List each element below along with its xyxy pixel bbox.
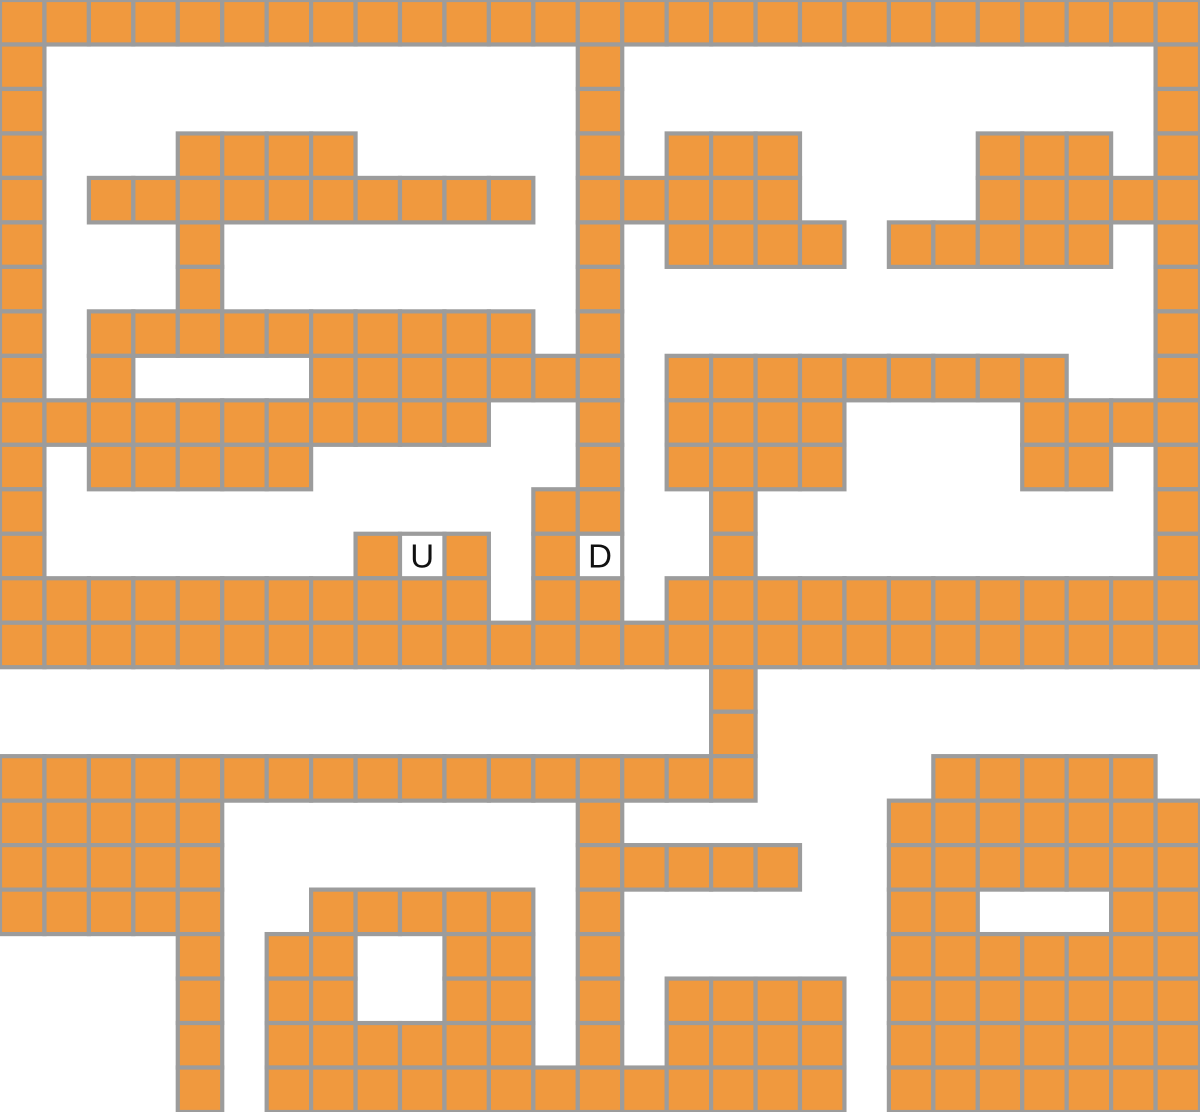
wall-tile [178,311,222,355]
wall-tile [1156,1068,1200,1112]
wall-tile [667,400,711,444]
wall-tile [356,400,400,444]
wall-tile [933,845,977,889]
wall-tile [267,578,311,622]
wall-tile [1067,178,1111,222]
wall-tile [800,222,844,266]
wall-tile [267,979,311,1023]
wall-tile [1067,0,1111,44]
wall-tile [1156,845,1200,889]
wall-tile [178,845,222,889]
wall-tile [711,0,755,44]
wall-tile [1156,534,1200,578]
wall-tile [756,1023,800,1067]
wall-tile [489,1068,533,1112]
wall-tile [756,133,800,177]
wall-tile [400,400,444,444]
wall-tile [533,534,577,578]
wall-tile [267,0,311,44]
wall-tile [0,178,44,222]
wall-tile [356,890,400,934]
wall-tile [267,1068,311,1112]
wall-tile [533,578,577,622]
wall-tile [267,133,311,177]
wall-tile [667,979,711,1023]
wall-tile [311,934,355,978]
wall-tile [1022,1023,1066,1067]
wall-tile [711,178,755,222]
wall-tile [0,534,44,578]
wall-tile [89,623,133,667]
wall-tile [1067,1068,1111,1112]
wall-tile [1067,801,1111,845]
wall-tile [1156,44,1200,88]
wall-tile [1067,623,1111,667]
wall-tile [667,1068,711,1112]
wall-tile [1022,756,1066,800]
wall-tile [311,890,355,934]
wall-tile [978,979,1022,1023]
wall-tile [711,133,755,177]
wall-tile [311,1023,355,1067]
wall-tile [267,934,311,978]
wall-tile [1111,934,1155,978]
wall-tile [1022,801,1066,845]
wall-tile [1022,400,1066,444]
wall-tile [356,623,400,667]
dungeon-map: UD [0,0,1200,1112]
wall-tile [133,801,177,845]
wall-tile [400,356,444,400]
wall-tile [667,222,711,266]
wall-tile [89,578,133,622]
wall-tile [89,890,133,934]
wall-tile [933,756,977,800]
wall-tile [267,445,311,489]
wall-tile [133,845,177,889]
wall-tile [1111,623,1155,667]
wall-tile [444,178,488,222]
wall-tile [578,489,622,533]
wall-tile [756,178,800,222]
wall-tile [89,356,133,400]
wall-tile [800,356,844,400]
wall-tile [356,1023,400,1067]
wall-tile [1111,801,1155,845]
wall-tile [667,178,711,222]
wall-tile [667,0,711,44]
wall-tile [1022,445,1066,489]
wall-tile [711,356,755,400]
wall-tile [89,845,133,889]
wall-tile [444,578,488,622]
wall-tile [0,356,44,400]
wall-tile [44,756,88,800]
wall-tile [0,0,44,44]
wall-tile [933,356,977,400]
wall-tile [1022,623,1066,667]
wall-tile [489,756,533,800]
wall-tile [89,178,133,222]
wall-tile [933,801,977,845]
wall-tile [133,311,177,355]
wall-tile [844,356,888,400]
wall-tile [444,756,488,800]
wall-tile [1022,979,1066,1023]
wall-tile [889,979,933,1023]
wall-tile [356,0,400,44]
wall-tile [0,89,44,133]
wall-tile [844,623,888,667]
wall-tile [356,356,400,400]
wall-tile [267,1023,311,1067]
wall-tile [978,1068,1022,1112]
wall-tile [578,445,622,489]
wall-tile [178,133,222,177]
wall-tile [578,89,622,133]
wall-tile [222,400,266,444]
wall-tile [1022,0,1066,44]
wall-tile [578,578,622,622]
wall-tile [756,400,800,444]
wall-tile [311,756,355,800]
wall-tile [800,1068,844,1112]
wall-tile [978,133,1022,177]
wall-tile [889,0,933,44]
wall-tile [44,0,88,44]
wall-tile [711,400,755,444]
wall-tile [0,133,44,177]
wall-tile [533,489,577,533]
wall-tile [933,979,977,1023]
wall-tile [978,222,1022,266]
wall-tile [933,222,977,266]
wall-tile [400,623,444,667]
wall-tile [1022,178,1066,222]
wall-tile [844,0,888,44]
wall-tile [133,445,177,489]
wall-tile [711,222,755,266]
wall-tile [1156,445,1200,489]
wall-tile [178,445,222,489]
wall-tile [800,578,844,622]
wall-tile [1022,356,1066,400]
wall-tile [133,578,177,622]
wall-tile [711,534,755,578]
wall-tile [533,756,577,800]
wall-tile [178,934,222,978]
wall-tile [889,623,933,667]
wall-tile [1067,133,1111,177]
wall-tile [444,400,488,444]
wall-tile [533,356,577,400]
wall-tile [1111,0,1155,44]
wall-tile [178,756,222,800]
wall-tile [222,0,266,44]
wall-tile [1156,89,1200,133]
wall-tile [800,0,844,44]
wall-tile [89,801,133,845]
wall-tile [1022,133,1066,177]
wall-tile [444,1023,488,1067]
wall-tile [44,578,88,622]
wall-tile [578,222,622,266]
wall-tile [444,890,488,934]
wall-tile [178,222,222,266]
wall-tile [756,356,800,400]
wall-tile [311,178,355,222]
wall-tile [1111,178,1155,222]
wall-tile [356,311,400,355]
wall-tile [578,311,622,355]
wall-tile [622,845,666,889]
wall-tile [978,356,1022,400]
wall-tile [1022,222,1066,266]
wall-tile [578,0,622,44]
wall-tile [756,623,800,667]
wall-tile [1156,489,1200,533]
wall-tile [489,934,533,978]
wall-tile [711,578,755,622]
wall-tile [311,979,355,1023]
wall-tile [889,222,933,266]
wall-tile [889,934,933,978]
wall-tile [356,756,400,800]
wall-tile [711,1068,755,1112]
wall-tile [1156,801,1200,845]
wall-tile [1067,845,1111,889]
wall-tile [311,133,355,177]
wall-tile [756,0,800,44]
wall-tile [1067,445,1111,489]
wall-tile [1156,1023,1200,1067]
wall-tile [178,801,222,845]
wall-tile [578,1068,622,1112]
wall-tile [756,979,800,1023]
wall-tile [89,400,133,444]
wall-tile [1156,578,1200,622]
wall-tile [1022,934,1066,978]
wall-tile [311,623,355,667]
wall-tile [667,133,711,177]
wall-tile [1156,356,1200,400]
wall-tile [311,0,355,44]
wall-tile [1111,756,1155,800]
wall-tile [889,578,933,622]
wall-tile [978,801,1022,845]
wall-tile [400,0,444,44]
wall-tile [978,845,1022,889]
wall-tile [1111,1068,1155,1112]
wall-tile [1156,222,1200,266]
wall-tile [622,756,666,800]
wall-tile [133,178,177,222]
wall-tile [311,356,355,400]
wall-tile [0,578,44,622]
stairs-down-label: D [588,538,612,575]
wall-tile [1022,1068,1066,1112]
wall-tile [889,890,933,934]
wall-tile [578,178,622,222]
wall-tile [533,1068,577,1112]
wall-tile [622,178,666,222]
wall-tile [711,756,755,800]
wall-tile [1111,890,1155,934]
wall-tile [311,1068,355,1112]
wall-tile [800,1023,844,1067]
wall-tile [133,400,177,444]
wall-tile [978,756,1022,800]
wall-tile [1156,934,1200,978]
wall-tile [400,178,444,222]
wall-tile [0,489,44,533]
wall-tile [933,890,977,934]
wall-tile [578,267,622,311]
wall-tile [1067,756,1111,800]
wall-tile [978,1023,1022,1067]
wall-tile [444,979,488,1023]
wall-tile [400,1023,444,1067]
wall-tile [0,845,44,889]
wall-tile [889,845,933,889]
wall-tile [356,534,400,578]
wall-tile [622,623,666,667]
wall-tile [844,578,888,622]
wall-tile [267,178,311,222]
wall-tile [178,1068,222,1112]
wall-tile [311,400,355,444]
wall-tile [178,979,222,1023]
wall-tile [578,623,622,667]
wall-tile [178,400,222,444]
wall-tile [1156,0,1200,44]
wall-tile [89,0,133,44]
wall-tile [578,44,622,88]
wall-tile [1156,623,1200,667]
wall-tile [0,311,44,355]
wall-tile [267,311,311,355]
wall-tile [978,0,1022,44]
wall-tile [178,178,222,222]
wall-tile [311,311,355,355]
wall-tile [444,534,488,578]
wall-tile [0,801,44,845]
wall-tile [578,845,622,889]
wall-tile [978,178,1022,222]
wall-tile [933,623,977,667]
wall-tile [0,890,44,934]
wall-tile [1022,845,1066,889]
wall-tile [89,756,133,800]
wall-tile [444,1068,488,1112]
wall-tile [889,356,933,400]
wall-tile [178,623,222,667]
wall-tile [400,1068,444,1112]
wall-tile [1156,311,1200,355]
wall-tile [578,890,622,934]
wall-tile [44,400,88,444]
wall-tile [578,756,622,800]
wall-tile [889,801,933,845]
wall-tile [489,178,533,222]
wall-tile [178,267,222,311]
wall-tile [44,801,88,845]
wall-tile [400,890,444,934]
wall-tile [933,934,977,978]
wall-tile [178,1023,222,1067]
wall-tile [711,445,755,489]
wall-tile [667,578,711,622]
wall-tile [800,623,844,667]
wall-tile [0,222,44,266]
wall-tile [222,756,266,800]
wall-tile [267,400,311,444]
wall-tile [889,1023,933,1067]
wall-tile [44,890,88,934]
wall-tile [1067,578,1111,622]
wall-tile [1067,400,1111,444]
wall-tile [489,311,533,355]
wall-tile [0,44,44,88]
wall-tile [444,623,488,667]
wall-tile [1156,178,1200,222]
wall-tile [356,578,400,622]
wall-tile [133,623,177,667]
wall-tile [1156,133,1200,177]
wall-tile [933,1023,977,1067]
wall-tile [222,133,266,177]
wall-tile [711,979,755,1023]
wall-tile [444,356,488,400]
wall-tile [0,623,44,667]
wall-tile [1067,222,1111,266]
wall-tile [89,445,133,489]
wall-tile [533,0,577,44]
dungeon-map-grid: UD [0,0,1200,1112]
wall-tile [667,1023,711,1067]
wall-tile [356,1068,400,1112]
wall-tile [444,311,488,355]
wall-tile [978,623,1022,667]
wall-tile [44,845,88,889]
wall-tile [489,979,533,1023]
wall-tile [1022,578,1066,622]
wall-tile [1156,400,1200,444]
wall-tile [489,890,533,934]
wall-tile [756,222,800,266]
wall-tile [578,934,622,978]
wall-tile [756,445,800,489]
wall-tile [1111,979,1155,1023]
wall-tile [1156,979,1200,1023]
wall-tile [0,756,44,800]
wall-tile [756,845,800,889]
wall-tile [622,1068,666,1112]
wall-tile [667,445,711,489]
wall-tile [222,623,266,667]
wall-tile [133,756,177,800]
wall-tile [978,578,1022,622]
wall-tile [0,400,44,444]
wall-tile [1067,1023,1111,1067]
wall-tile [400,311,444,355]
wall-tile [267,623,311,667]
wall-tile [622,0,666,44]
wall-tile [1156,890,1200,934]
wall-tile [711,489,755,533]
wall-tile [44,623,88,667]
wall-tile [1111,845,1155,889]
